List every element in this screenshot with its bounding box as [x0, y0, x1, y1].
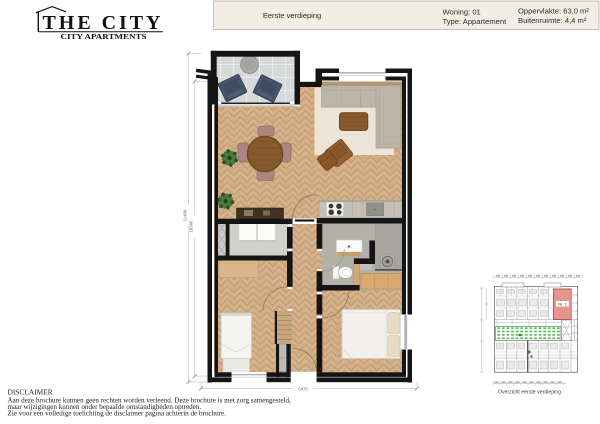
svg-text:CITY APARTMENTS: CITY APARTMENTS: [61, 34, 147, 41]
svg-text:Overzicht eerste verdieping: Overzicht eerste verdieping: [498, 390, 561, 396]
svg-text:Nr. 1: Nr. 1: [558, 301, 567, 306]
svg-text:10300: 10300: [189, 220, 194, 233]
svg-text:Oppervlakte: 63,0 m²: Oppervlakte: 63,0 m²: [518, 6, 589, 15]
svg-text:Eerste verdieping: Eerste verdieping: [263, 11, 321, 20]
svg-text:Woning: 01: Woning: 01: [443, 7, 481, 16]
svg-text:Zie voor een volledige toelich: Zie voor een volledige toelichting de di…: [8, 409, 227, 417]
svg-text:11480: 11480: [182, 209, 187, 221]
svg-text:6470: 6470: [298, 386, 308, 391]
svg-text:Type: Appartement: Type: Appartement: [443, 17, 508, 26]
svg-text:Buitenruimte: 4,4 m²: Buitenruimte: 4,4 m²: [518, 16, 587, 25]
svg-text:DISCLAIMER: DISCLAIMER: [8, 388, 53, 397]
